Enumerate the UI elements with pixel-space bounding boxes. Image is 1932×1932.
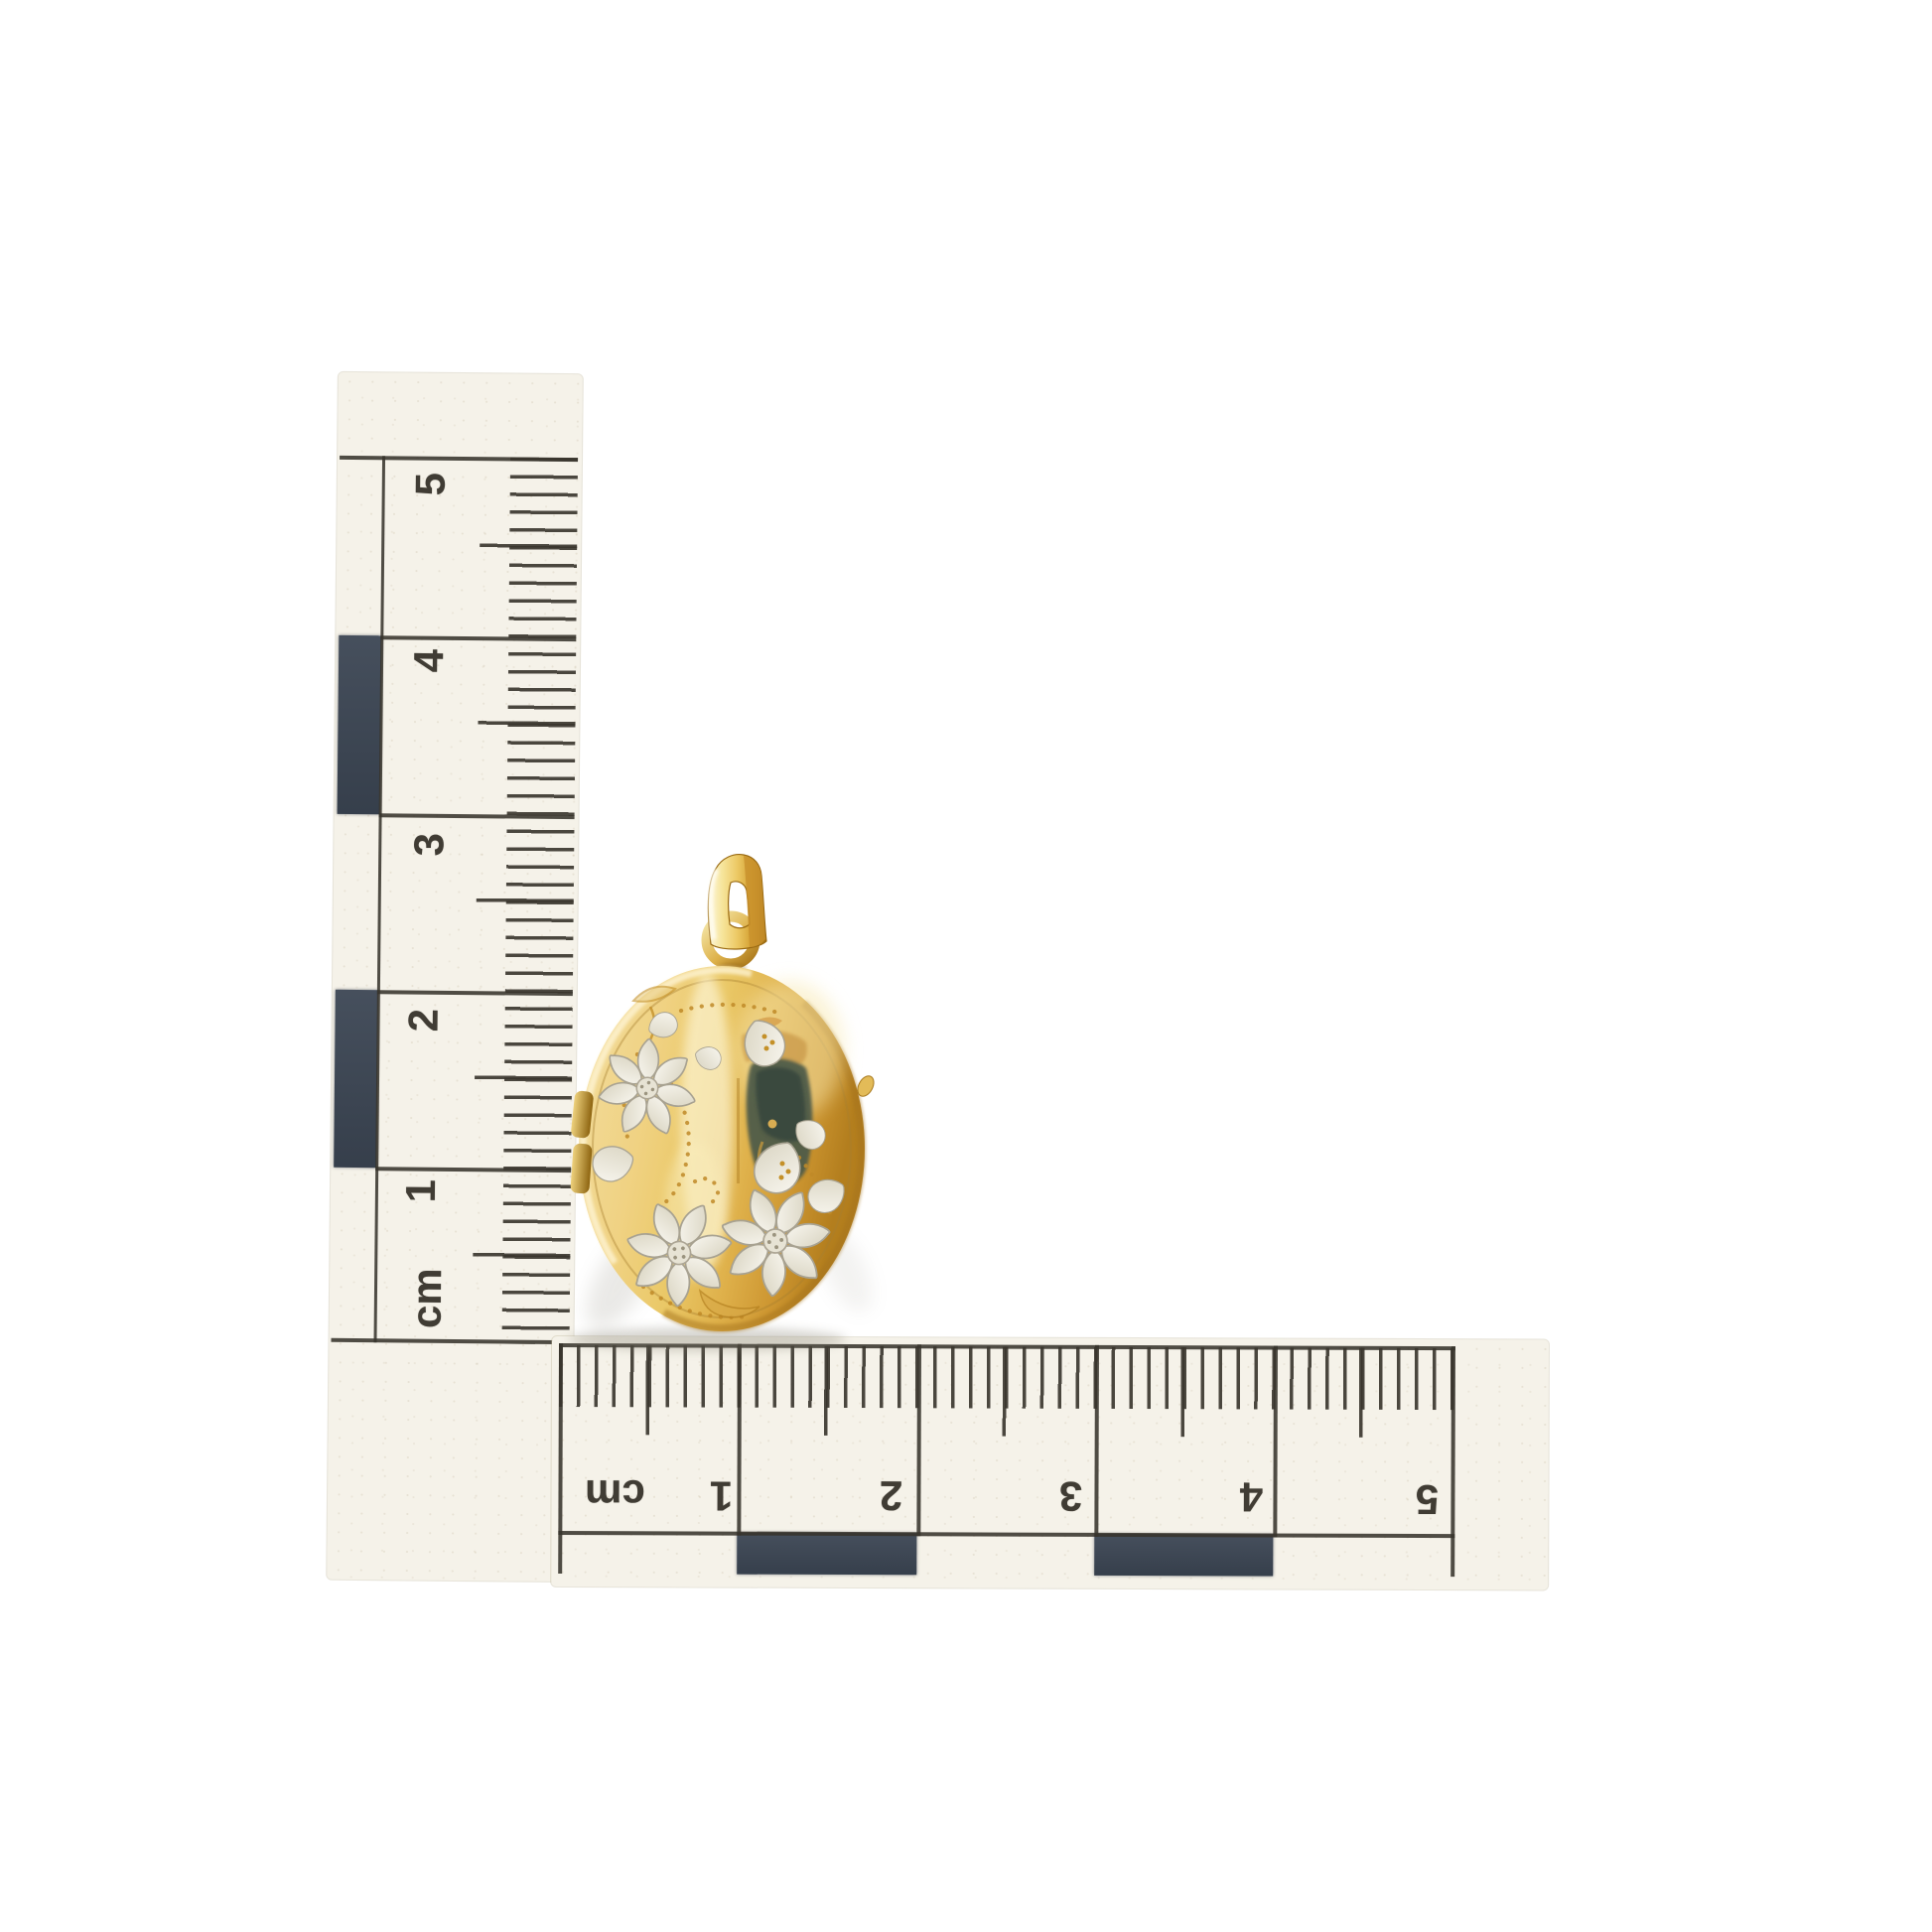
ruler-number-3: 3 xyxy=(408,833,450,857)
cm-label: cm xyxy=(585,1473,645,1515)
checker-cell xyxy=(1094,1534,1273,1577)
locket-pendant xyxy=(536,814,923,1390)
checker-cell xyxy=(338,635,382,814)
ruler-number-4: 4 xyxy=(1240,1475,1264,1517)
checker-cell xyxy=(737,1533,916,1576)
ruler-number-2: 2 xyxy=(402,1009,444,1033)
ruler-number-5: 5 xyxy=(1416,1478,1440,1520)
locket-bail xyxy=(708,855,766,949)
cm-label: cm xyxy=(406,1268,449,1328)
ruler-number-2: 2 xyxy=(880,1474,903,1516)
ruler-number-3: 3 xyxy=(1059,1475,1083,1517)
checker-cell xyxy=(334,990,378,1168)
ruler-number-1: 1 xyxy=(400,1179,442,1203)
photo-stage: 5 4 3 2 1 cm cm 1 2 3 4 5 xyxy=(0,0,1932,1932)
ruler-number-5: 5 xyxy=(410,473,452,496)
ruler-number-4: 4 xyxy=(408,649,450,673)
ruler-number-1: 1 xyxy=(710,1475,734,1517)
